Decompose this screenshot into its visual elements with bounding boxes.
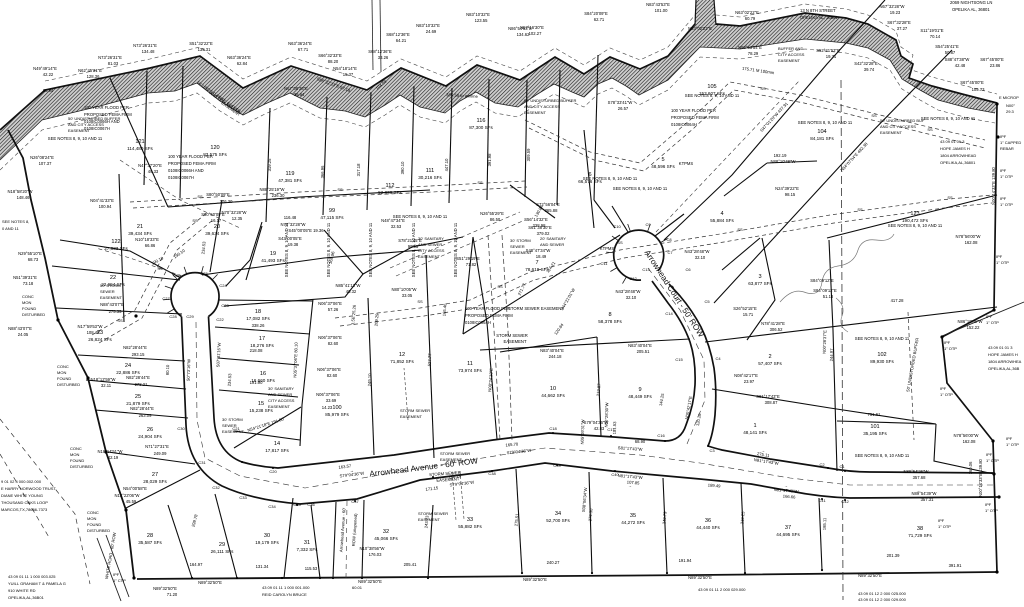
svg-text:176.03: 176.03 [369, 552, 382, 557]
svg-text:S80°50'09"E: S80°50'09"E [201, 212, 225, 217]
svg-text:→: → [498, 451, 503, 456]
svg-text:STORM SEWER: STORM SEWER [418, 511, 448, 516]
svg-text:→: → [350, 468, 355, 473]
svg-text:N57°16'30"E: N57°16'30"E [520, 25, 544, 30]
svg-text:33: 33 [467, 517, 473, 523]
svg-text:S26°52'15"E: S26°52'15"E [733, 306, 757, 311]
svg-text:N85°41'13"W: N85°41'13"W [336, 283, 361, 288]
svg-text:N06°37'06"E: N06°37'06"E [317, 367, 341, 372]
svg-text:N78°56'00"W: N78°56'00"W [956, 234, 981, 239]
svg-text:S45°00'05"E 19.36: S45°00'05"E 19.36 [288, 228, 324, 233]
svg-text:S84°09'12"E: S84°09'12"E [810, 278, 834, 283]
svg-text:N00°14'33"E 139.80: N00°14'33"E 139.80 [991, 166, 996, 204]
svg-text:160.06: 160.06 [968, 461, 973, 474]
svg-text:C2: C2 [819, 462, 825, 467]
svg-text:100 YEAR FLOOD PER: 100 YEAR FLOOD PER [465, 306, 510, 311]
svg-text:EASEMENT: EASEMENT [418, 517, 441, 522]
svg-text:116.48: 116.48 [284, 215, 297, 220]
svg-text:16.17: 16.17 [211, 218, 222, 223]
svg-text:67.71: 67.71 [298, 47, 309, 52]
svg-text:191.90: 191.90 [250, 380, 263, 385]
svg-text:STORM SEWER: STORM SEWER [400, 408, 430, 413]
svg-text:26: 26 [147, 427, 153, 433]
svg-text:N18°12'59"W: N18°12'59"W [91, 377, 116, 382]
svg-text:19: 19 [270, 251, 276, 257]
svg-text:IPF: IPF [996, 254, 1003, 259]
svg-text:AND CITY ACCESS: AND CITY ACCESS [880, 124, 916, 129]
svg-text:S84°09'12"E: S84°09'12"E [813, 288, 837, 293]
svg-text:STORM SEWER: STORM SEWER [496, 333, 528, 338]
svg-text:N86°10'36"W: N86°10'36"W [958, 319, 983, 324]
svg-text:50' STORM: 50' STORM [100, 283, 121, 288]
svg-text:C18: C18 [549, 426, 557, 431]
svg-text:S68°12'36"E: S68°12'36"E [386, 32, 410, 37]
svg-text:43 09 01 11 2 000 029.000: 43 09 01 11 2 000 029.000 [698, 587, 746, 592]
svg-text:102: 102 [877, 352, 886, 358]
svg-text:PROPOSED FEMA FIRM: PROPOSED FEMA FIRM [465, 313, 513, 318]
svg-text:N89°32'50"E: N89°32'50"E [523, 577, 547, 582]
svg-text:100 YEAR FLOOD PER: 100 YEAR FLOOD PER [168, 154, 213, 159]
svg-text:71,729 SFs: 71,729 SFs [908, 533, 932, 538]
svg-text:71.82: 71.82 [466, 262, 477, 267]
svg-text:9: 9 [638, 387, 641, 393]
svg-text:N63°02'22"E: N63°02'22"E [688, 26, 712, 31]
svg-text:N05°09'31"W: N05°09'31"W [580, 419, 586, 444]
svg-text:DISTURBED: DISTURBED [70, 464, 93, 469]
svg-text:49.33: 49.33 [148, 169, 159, 174]
svg-text:3: 3 [758, 274, 761, 280]
svg-text:244.97: 244.97 [829, 348, 834, 362]
svg-text:S51°32'22"E: S51°32'22"E [189, 41, 213, 46]
svg-text:PROPOSED FEMA FIRM: PROPOSED FEMA FIRM [84, 112, 132, 117]
svg-text:S78°33'41"W: S78°33'41"W [608, 100, 633, 105]
svg-text:45.59: 45.59 [126, 499, 137, 504]
svg-text:N67°32'28"W: N67°32'28"W [880, 4, 905, 9]
svg-text:C32: C32 [212, 485, 220, 490]
svg-text:16: 16 [260, 371, 266, 377]
svg-text:N88°25'19"W: N88°25'19"W [260, 187, 285, 192]
svg-text:17,817 SFs: 17,817 SFs [265, 448, 289, 453]
svg-text:2069 NIGHTSONG LN: 2069 NIGHTSONG LN [950, 0, 992, 5]
svg-text:N62°45'31"E: N62°45'31"E [78, 68, 102, 73]
svg-text:15.37: 15.37 [343, 72, 354, 77]
svg-text:N47°37'20"E: N47°37'20"E [138, 163, 162, 168]
svg-text:236.30: 236.30 [272, 193, 285, 198]
svg-text:S81°17'43"E: S81°17'43"E [756, 394, 780, 399]
svg-text:1" CAPPED: 1" CAPPED [1000, 140, 1021, 145]
svg-text:38: 38 [917, 526, 923, 532]
svg-text:N54°18'14"E: N54°18'14"E [333, 66, 357, 71]
svg-text:119: 119 [286, 171, 295, 177]
svg-text:C35: C35 [293, 502, 301, 507]
svg-text:84,181 SFs: 84,181 SFs [810, 136, 834, 141]
svg-text:C30: C30 [177, 426, 185, 431]
svg-text:IPF: IPF [113, 572, 120, 577]
svg-text:19.23: 19.23 [890, 10, 901, 15]
svg-text:KTPMS: KTPMS [679, 161, 694, 166]
svg-text:YUILL GRAHAM T & PAMELA G: YUILL GRAHAM T & PAMELA G [8, 581, 66, 586]
svg-text:CITY ACCESS: CITY ACCESS [268, 398, 295, 403]
svg-text:IPF: IPF [1000, 168, 1007, 173]
svg-text:8: 8 [608, 312, 611, 318]
svg-text:N54°00'58"E: N54°00'58"E [123, 486, 147, 491]
svg-text:43 09 01 11 1 000 001.000: 43 09 01 11 1 000 001.000 [262, 585, 310, 590]
svg-text:S67°45'00"E: S67°45'00"E [960, 80, 984, 85]
svg-text:4: 4 [720, 211, 723, 217]
svg-text:1" OTP: 1" OTP [985, 508, 998, 513]
svg-text:64.21: 64.21 [396, 38, 407, 43]
svg-text:N00°: N00° [1006, 103, 1015, 108]
svg-text:36: 36 [705, 518, 711, 524]
svg-text:CITY ACCESS: CITY ACCESS [778, 52, 805, 57]
svg-text:234.53: 234.53 [227, 373, 233, 387]
svg-text:N13°22'06"W: N13°22'06"W [115, 493, 140, 498]
svg-text:152.22: 152.22 [967, 325, 980, 330]
svg-text:FOUND: FOUND [70, 458, 84, 463]
svg-text:THOUSAND OAKS LOOP: THOUSAND OAKS LOOP [1, 500, 48, 505]
svg-text:EASEMENT: EASEMENT [400, 414, 423, 419]
svg-text:IPF: IPF [985, 502, 992, 507]
svg-text:C42: C42 [841, 499, 849, 504]
svg-text:26,824 SFs: 26,824 SFs [88, 337, 112, 342]
svg-text:C38: C38 [488, 471, 496, 476]
svg-text:51.18: 51.18 [823, 294, 834, 299]
svg-text:102.27: 102.27 [529, 31, 542, 36]
svg-text:SS: SS [617, 240, 623, 245]
svg-text:309.59: 309.59 [526, 148, 531, 161]
svg-text:N48°47'34"E: N48°47'34"E [381, 218, 405, 223]
svg-text:C14: C14 [665, 311, 673, 316]
svg-text:37: 37 [785, 525, 791, 531]
svg-text:N71°27'31"E: N71°27'31"E [145, 444, 169, 449]
svg-text:11: 11 [467, 361, 473, 367]
svg-text:44,662 SFs: 44,662 SFs [541, 393, 565, 398]
svg-text:24.05: 24.05 [18, 332, 29, 337]
svg-text:30' STORM: 30' STORM [510, 238, 531, 243]
svg-text:N73°26'31"E: N73°26'31"E [98, 55, 122, 60]
svg-text:32.53: 32.53 [391, 224, 402, 229]
svg-text:50.87: 50.87 [945, 50, 956, 55]
svg-text:N43°28'48"W: N43°28'48"W [616, 289, 641, 294]
svg-text:52,700 SFs: 52,700 SFs [546, 518, 570, 523]
svg-text:N18°58'20"W: N18°58'20"W [8, 189, 33, 194]
svg-text:14: 14 [274, 441, 280, 447]
svg-text:DISTURBED: DISTURBED [57, 382, 80, 387]
svg-text:IPF: IPF [944, 340, 951, 345]
svg-text:47,381 SFs: 47,381 SFs [278, 178, 302, 183]
svg-text:HOPE JAMES H: HOPE JAMES H [940, 146, 970, 151]
svg-text:SEE NOTES 8, 9, 10 AND 11: SEE NOTES 8, 9, 10 AND 11 [453, 222, 458, 277]
svg-text:C11: C11 [600, 261, 608, 266]
svg-text:SS: SS [927, 127, 933, 132]
svg-text:33.26: 33.26 [378, 55, 389, 60]
svg-text:N73°26'31"E: N73°26'31"E [133, 43, 157, 48]
svg-text:58,378 SFs: 58,378 SFs [598, 319, 622, 324]
svg-text:C34: C34 [268, 504, 276, 509]
svg-text:1" CTP: 1" CTP [113, 578, 126, 583]
svg-text:114,480 SFs: 114,480 SFs [127, 146, 153, 151]
svg-text:C41: C41 [818, 498, 826, 503]
svg-text:293.15: 293.15 [132, 352, 145, 357]
svg-text:111: 111 [426, 168, 435, 174]
svg-text:E MICROP: E MICROP [999, 95, 1019, 100]
svg-text:OPELIKA AL, 36801: OPELIKA AL, 36801 [952, 7, 990, 12]
svg-text:CITY ACCESS: CITY ACCESS [418, 248, 445, 253]
svg-text:→: → [916, 488, 920, 493]
svg-text:13 N 8TH STREET: 13 N 8TH STREET [800, 8, 836, 13]
svg-text:N06°37'06"E: N06°37'06"E [318, 301, 342, 306]
svg-text:N70°32'28"W: N70°32'28"W [222, 210, 247, 215]
svg-text:1" OTP: 1" OTP [938, 524, 951, 529]
svg-text:N89°32'50"E: N89°32'50"E [198, 580, 222, 585]
svg-text:1" OTP: 1" OTP [986, 458, 999, 463]
svg-text:71.20: 71.20 [167, 592, 178, 597]
svg-text:IPF: IPF [1006, 436, 1013, 441]
svg-text:10: 10 [550, 386, 556, 392]
svg-text:447.10: 447.10 [444, 158, 449, 171]
svg-text:SS: SS [157, 266, 163, 271]
svg-text:42.48: 42.48 [955, 63, 966, 68]
svg-text:SS: SS [871, 113, 877, 118]
svg-text:39,434 SFs: 39,434 SFs [128, 231, 152, 236]
svg-text:N00°28'37"E: N00°28'37"E [822, 330, 828, 354]
svg-text:EASEMENT: EASEMENT [524, 110, 547, 115]
svg-text:30: 30 [264, 533, 270, 539]
svg-text:162.08: 162.08 [963, 439, 976, 444]
svg-text:191.94: 191.94 [679, 558, 692, 563]
svg-text:7,332 SFs: 7,332 SFs [297, 547, 319, 552]
svg-text:751.61: 751.61 [868, 412, 881, 417]
svg-text:31: 31 [304, 540, 310, 546]
svg-text:120: 120 [210, 145, 219, 151]
svg-text:26.57: 26.57 [618, 106, 629, 111]
svg-text:123.55: 123.55 [475, 18, 488, 23]
svg-text:C3: C3 [709, 448, 715, 453]
svg-text:1" OTP: 1" OTP [996, 260, 1009, 265]
svg-text:1" OTP: 1" OTP [1000, 174, 1013, 179]
svg-text:S84°20'09"E: S84°20'09"E [584, 11, 608, 16]
svg-text:CONC: CONC [70, 446, 82, 451]
svg-text:5: 5 [661, 157, 664, 163]
svg-text:N06°37'06"E: N06°37'06"E [316, 392, 340, 397]
svg-text:SEWER: SEWER [510, 244, 525, 249]
svg-text:48,141 SFs: 48,141 SFs [743, 430, 767, 435]
svg-text:73.18: 73.18 [23, 281, 34, 286]
svg-text:104: 104 [817, 129, 826, 135]
svg-text:24.69: 24.69 [426, 29, 437, 34]
svg-text:44,440 SFs: 44,440 SFs [696, 525, 720, 530]
svg-text:REID CAROLYN BRUCE: REID CAROLYN BRUCE [262, 592, 307, 597]
svg-text:MON: MON [22, 300, 31, 305]
svg-text:S42°32'28"E: S42°32'28"E [854, 61, 878, 66]
svg-text:S88°47'38"W: S88°47'38"W [945, 57, 970, 62]
svg-text:21: 21 [137, 224, 143, 230]
svg-text:417.28: 417.28 [891, 298, 904, 303]
svg-text:SEWER: SEWER [100, 289, 115, 294]
svg-text:S51°29'19"E: S51°29'19"E [456, 256, 480, 261]
svg-text:SEE NOTES 8, 9, 10 AND 11: SEE NOTES 8, 9, 10 AND 11 [855, 336, 910, 341]
svg-text:121: 121 [135, 139, 144, 145]
svg-text:12.35: 12.35 [232, 216, 243, 221]
svg-text:N26°08'24"E: N26°08'24"E [30, 155, 54, 160]
svg-text:527.77: 527.77 [427, 353, 432, 367]
svg-text:39.74: 39.74 [864, 67, 875, 72]
svg-text:S68°12'36"E: S68°12'36"E [368, 49, 392, 54]
svg-text:63,877 SFs: 63,877 SFs [748, 281, 772, 286]
svg-text:N29°55'10"E: N29°55'10"E [18, 251, 42, 256]
svg-text:338.26: 338.26 [252, 323, 265, 328]
svg-text:17,082 SFs: 17,082 SFs [246, 316, 270, 321]
svg-text:MON: MON [70, 452, 79, 457]
svg-text:19.38: 19.38 [288, 242, 299, 247]
svg-text:15: 15 [258, 401, 264, 407]
svg-text:249.10: 249.10 [367, 373, 372, 387]
svg-text:185.11: 185.11 [822, 517, 827, 530]
svg-text:KTPMS: KTPMS [600, 246, 615, 251]
svg-text:52,899 SFs: 52,899 SFs [378, 190, 402, 195]
svg-text:128.36: 128.36 [87, 74, 100, 79]
svg-text:275.35: 275.35 [109, 309, 122, 314]
svg-text:N26°55'29"E: N26°55'29"E [480, 211, 504, 216]
svg-text:C9: C9 [645, 222, 651, 227]
svg-text:FOUND: FOUND [22, 306, 36, 311]
svg-text:18: 18 [255, 309, 261, 315]
svg-text:1" OTP: 1" OTP [940, 392, 953, 397]
svg-text:N49°49'14"E: N49°49'14"E [33, 66, 57, 71]
svg-text:33.69: 33.69 [326, 398, 337, 403]
svg-text:205.41: 205.41 [404, 562, 417, 567]
svg-text:SEE NOTES 8, 9, 10 AND 11: SEE NOTES 8, 9, 10 AND 11 [326, 222, 331, 277]
svg-text:317.18: 317.18 [356, 163, 361, 176]
svg-text:1804 ARROWHEAD: 1804 ARROWHEAD [940, 153, 976, 158]
svg-text:FOUND: FOUND [57, 376, 71, 381]
svg-text:0 AND 11: 0 AND 11 [2, 226, 20, 231]
svg-text:88.20: 88.20 [328, 59, 339, 64]
svg-text:C23: C23 [221, 303, 229, 308]
svg-text:35,587 SFs: 35,587 SFs [138, 540, 162, 545]
svg-text:N18°14'51"W: N18°14'51"W [98, 449, 123, 454]
svg-text:FOUND: FOUND [87, 522, 101, 527]
svg-text:→: → [628, 483, 632, 488]
svg-text:18.49: 18.49 [536, 254, 547, 259]
svg-text:105: 105 [707, 84, 716, 90]
svg-text:50' UNDISTURBED BUFFER: 50' UNDISTURBED BUFFER [524, 98, 576, 103]
svg-text:SS: SS [117, 318, 123, 323]
svg-text:43 09 01 01 3: 43 09 01 01 3 [988, 345, 1013, 350]
svg-text:MON: MON [87, 516, 96, 521]
svg-text:S11°19'01"E: S11°19'01"E [920, 28, 943, 33]
svg-text:42.22: 42.22 [43, 72, 54, 77]
svg-text:MON: MON [57, 370, 66, 375]
svg-text:SEE NOTES 8, 9, 10 AND 11: SEE NOTES 8, 9, 10 AND 11 [798, 120, 853, 125]
svg-text:366.96: 366.96 [320, 165, 325, 178]
svg-text:C37: C37 [351, 499, 359, 504]
svg-text:SS: SS [417, 299, 423, 304]
svg-text:47,115 SFs: 47,115 SFs [320, 215, 344, 220]
svg-text:43 09 01 12 2 000 029.000: 43 09 01 12 2 000 029.000 [858, 597, 907, 602]
svg-text:32: 32 [383, 529, 389, 535]
svg-text:308.87: 308.87 [765, 400, 778, 405]
svg-text:N88°53'54"E: N88°53'54"E [738, 45, 762, 50]
svg-text:IPF: IPF [1000, 196, 1007, 201]
svg-text:AND SEWER: AND SEWER [268, 392, 292, 397]
svg-text:EASEMENT: EASEMENT [100, 295, 123, 300]
svg-text:N43°28'48"W: N43°28'48"W [685, 249, 710, 254]
svg-text:23.86: 23.86 [990, 63, 1001, 68]
svg-text:C20: C20 [269, 469, 277, 474]
svg-text:C7: C7 [667, 250, 673, 255]
svg-text:EASEMENT: EASEMENT [440, 457, 463, 462]
svg-text:AND SEWER: AND SEWER [540, 242, 564, 247]
svg-text:391.91: 391.91 [949, 563, 962, 568]
svg-text:C25: C25 [200, 271, 208, 276]
svg-text:57,407 SFs: 57,407 SFs [758, 361, 782, 366]
svg-text:0108IC0064H: 0108IC0064H [465, 320, 491, 325]
svg-text:C15: C15 [675, 357, 683, 362]
svg-text:AND CITY ACCESS: AND CITY ACCESS [524, 104, 560, 109]
svg-text:41,493 SFs: 41,493 SFs [261, 258, 285, 263]
svg-text:37.27: 37.27 [897, 26, 908, 31]
svg-text:N10°18'33"E: N10°18'33"E [135, 237, 159, 242]
svg-text:S66°32'33"E: S66°32'33"E [318, 53, 342, 58]
svg-text:39,634 SFs: 39,634 SFs [205, 231, 229, 236]
svg-text:C26: C26 [173, 273, 181, 278]
svg-text:0108IC0066H AND: 0108IC0066H AND [84, 119, 120, 124]
svg-text:81.03: 81.03 [108, 61, 119, 66]
svg-text:131.34: 131.34 [256, 564, 269, 569]
svg-text:N88°10'48"W: N88°10'48"W [771, 159, 796, 164]
svg-text:42.19: 42.19 [108, 455, 119, 460]
svg-text:OPELIKA,AL,36801: OPELIKA,AL,36801 [940, 160, 976, 165]
svg-text:73,974 SFs: 73,974 SFs [458, 368, 482, 373]
svg-text:192.19: 192.19 [774, 153, 787, 158]
svg-text:1804 ARROWHEA: 1804 ARROWHEA [988, 359, 1022, 364]
svg-text:SS: SS [337, 187, 343, 192]
svg-text:89,930 SFs: 89,930 SFs [870, 359, 894, 364]
svg-text:33.05: 33.05 [402, 293, 413, 298]
svg-text:IPF: IPF [1000, 134, 1007, 139]
svg-text:N89°54'26"W: N89°54'26"W [904, 469, 929, 474]
svg-text:12: 12 [399, 352, 405, 358]
svg-text:SS: SS [857, 207, 863, 212]
svg-text:→: → [784, 483, 788, 488]
svg-text:S43°00'05"E: S43°00'05"E [278, 236, 302, 241]
svg-text:365.88: 365.88 [545, 208, 558, 213]
svg-text:26,111 SFs: 26,111 SFs [211, 549, 235, 554]
svg-text:EASEMENT: EASEMENT [880, 130, 903, 135]
svg-text:85.94: 85.94 [43, 88, 54, 93]
svg-text:N82°28'44"E: N82°28'44"E [130, 406, 154, 411]
svg-text:55,884 SFs: 55,884 SFs [710, 218, 734, 223]
svg-text:43 09 01 12 2 000 025.000: 43 09 01 12 2 000 025.000 [858, 591, 907, 596]
svg-text:AND SEWER: AND SEWER [418, 242, 442, 247]
svg-text:IPF: IPF [986, 314, 993, 319]
svg-text:68.73: 68.73 [28, 257, 39, 262]
svg-text:17: 17 [259, 336, 265, 342]
svg-text:SEE NOTES 8, 9, 10 AND 11: SEE NOTES 8, 9, 10 AND 11 [685, 93, 740, 98]
svg-text:87,300 SFs: 87,300 SFs [469, 125, 493, 130]
svg-text:86.50: 86.50 [490, 217, 501, 222]
svg-text:218.08: 218.08 [250, 348, 263, 353]
svg-text:EASEMENT: EASEMENT [510, 250, 533, 255]
svg-text:32.11: 32.11 [101, 383, 112, 388]
svg-text:N06°37'06"E: N06°37'06"E [318, 335, 342, 340]
svg-text:N17°59'53"W: N17°59'53"W [78, 324, 103, 329]
svg-text:62.84: 62.84 [237, 61, 248, 66]
svg-text:N83°40'04"E: N83°40'04"E [540, 348, 564, 353]
svg-text:100: 100 [332, 405, 341, 411]
svg-text:14.23: 14.23 [322, 405, 333, 410]
